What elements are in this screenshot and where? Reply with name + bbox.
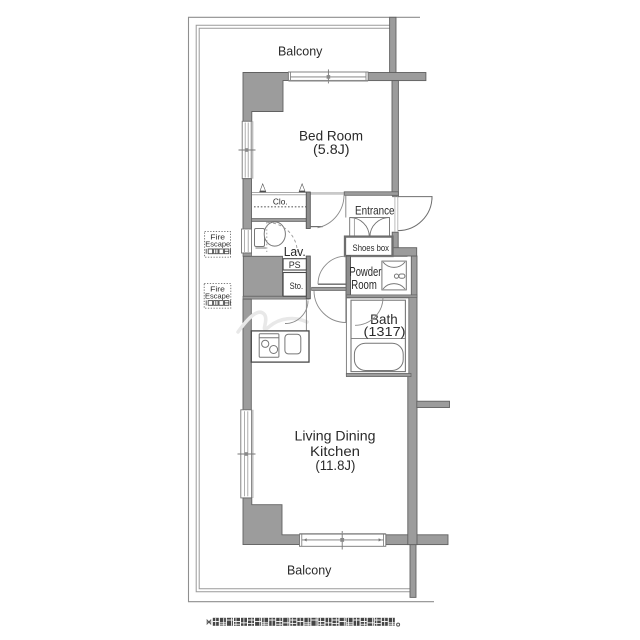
svg-text:Lav.: Lav. xyxy=(284,244,306,259)
svg-text:Balcony: Balcony xyxy=(287,564,332,578)
svg-text:(11.8J): (11.8J) xyxy=(315,457,355,473)
svg-text:Shoes box: Shoes box xyxy=(353,243,390,254)
svg-text:Escape: Escape xyxy=(205,291,230,300)
svg-text:Entrance: Entrance xyxy=(355,204,395,218)
svg-text:Balcony: Balcony xyxy=(278,44,323,58)
svg-text:(5.8J): (5.8J) xyxy=(313,141,350,157)
svg-text:Clo.: Clo. xyxy=(273,196,288,206)
svg-text:Living Dining: Living Dining xyxy=(295,427,376,443)
svg-text:(1317): (1317) xyxy=(364,325,406,339)
svg-text:Sto.: Sto. xyxy=(290,281,304,292)
svg-text:Room: Room xyxy=(351,277,377,292)
svg-text:PS: PS xyxy=(289,260,301,271)
svg-text:Escape: Escape xyxy=(205,240,230,249)
